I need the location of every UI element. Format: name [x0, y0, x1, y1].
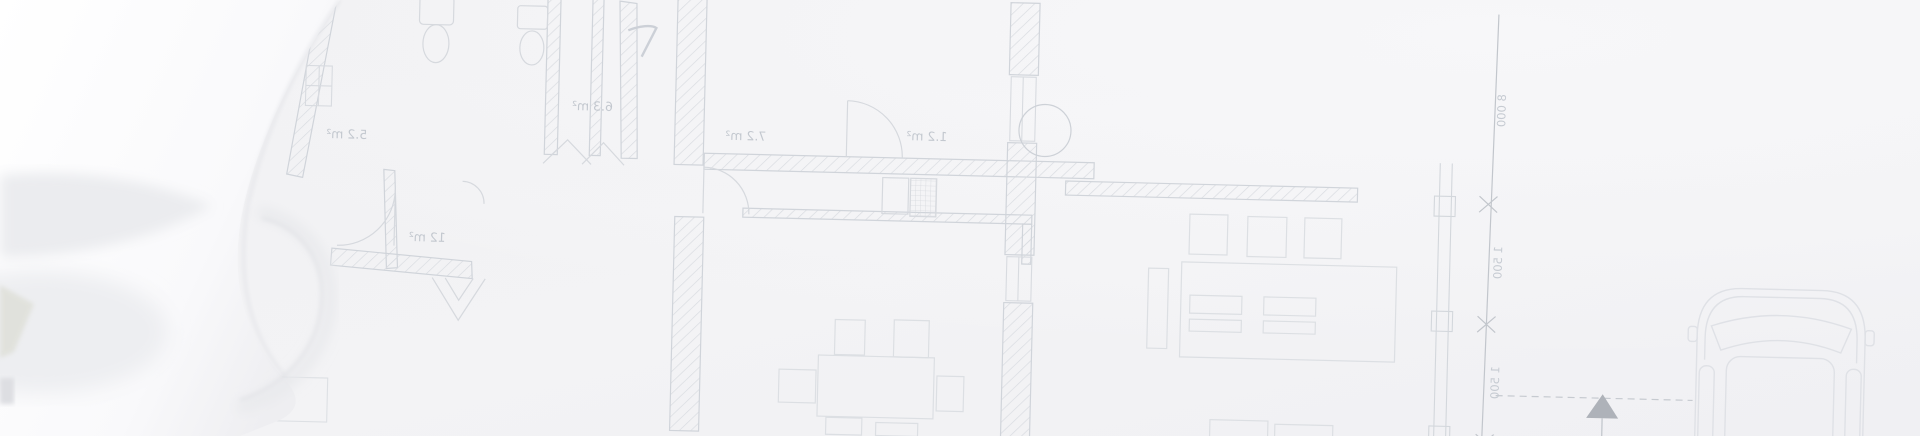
- room-label-bathroom: 5.2 m²: [326, 126, 367, 142]
- wall: [674, 0, 707, 165]
- room-label-corridor: 12 m²: [408, 229, 445, 245]
- dimension-label-bottom: 1 500: [1488, 366, 1503, 399]
- stove-symbol: [910, 178, 937, 217]
- wall: [1022, 224, 1032, 264]
- dimension-label-middle: 1 500: [1490, 246, 1505, 279]
- wall: [670, 216, 704, 431]
- rolled-blueprints: [0, 0, 340, 436]
- wall: [1000, 303, 1032, 436]
- wall: [1009, 3, 1040, 76]
- desk-shadow: [0, 378, 14, 404]
- blueprint-scene: 5.2 m² 6.3 m² 7.2 m² 1.2 m² 12 m² 8 000 …: [0, 0, 1920, 436]
- blueprint-hero-background: 5.2 m² 6.3 m² 7.2 m² 1.2 m² 12 m² 8 000 …: [0, 0, 1920, 436]
- room-label-room-left: 7.2 m²: [725, 128, 766, 144]
- dimension-label-top: 8 000: [1494, 94, 1509, 127]
- room-label-room-right: 1.2 m²: [906, 128, 947, 144]
- room-label-hall: 6.3 m²: [572, 98, 613, 114]
